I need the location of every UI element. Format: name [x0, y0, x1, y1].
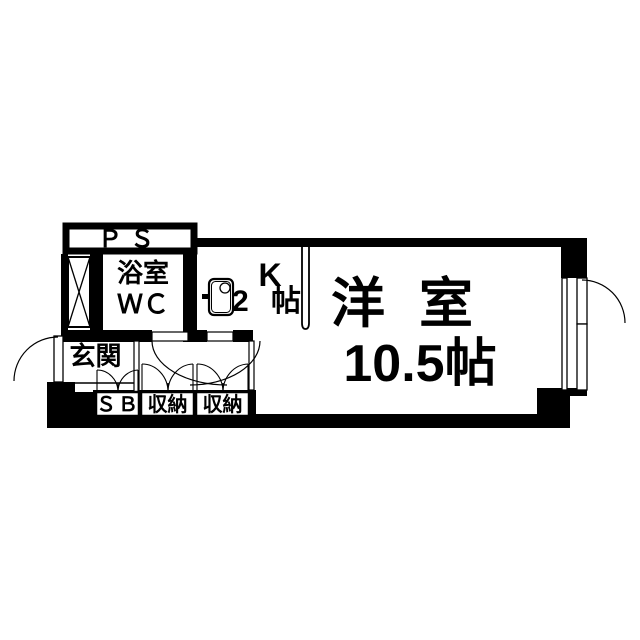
- balcony-door-leaf: [577, 278, 587, 324]
- right-upper-wall: [561, 247, 587, 278]
- entrance-door-arc: [14, 337, 58, 381]
- corridor-wall-mid: [188, 330, 207, 342]
- bathroom-door-arc: [152, 341, 227, 385]
- window-glazing: [577, 324, 587, 390]
- entrance-bottom-wall: [61, 392, 96, 428]
- bathroom-label: 浴室: [103, 260, 183, 286]
- bathroom-left-wall: [90, 254, 103, 332]
- corridor-wall-right: [233, 330, 253, 342]
- bottom-wall: [249, 414, 570, 428]
- bathroom-wc-label: ＷＣ: [103, 291, 183, 317]
- ps-label: ＰＳ: [63, 228, 197, 252]
- top-wall: [197, 238, 587, 247]
- bottom-right-block: [537, 388, 570, 428]
- faucet-handle: [202, 294, 210, 299]
- kitchen-door-leaf: [207, 332, 233, 341]
- bathroom-right-wall: [183, 247, 197, 342]
- floor-plan-canvas: ＰＳ 浴室 ＷＣ K 2 帖 洋 室 10.5帖 玄関 ＳＢ 収納 収納: [0, 0, 640, 640]
- balcony-opening: [562, 278, 625, 390]
- shoe-box-label: ＳＢ: [96, 395, 139, 415]
- storage1-label: 収納: [141, 395, 194, 415]
- wall-face-line: [562, 278, 567, 390]
- entrance-label: 玄関: [62, 343, 129, 369]
- western-room-label: 洋 室: [272, 277, 532, 331]
- western-room-size: 10.5帖: [288, 338, 552, 390]
- shaft-x-box: [68, 257, 90, 327]
- storage2-label: 収納: [196, 395, 249, 415]
- room-door-leaf: [249, 341, 254, 390]
- balcony-door-arc: [582, 280, 625, 323]
- bathroom-door-leaf: [152, 332, 188, 341]
- left-outer-wall: [61, 254, 68, 332]
